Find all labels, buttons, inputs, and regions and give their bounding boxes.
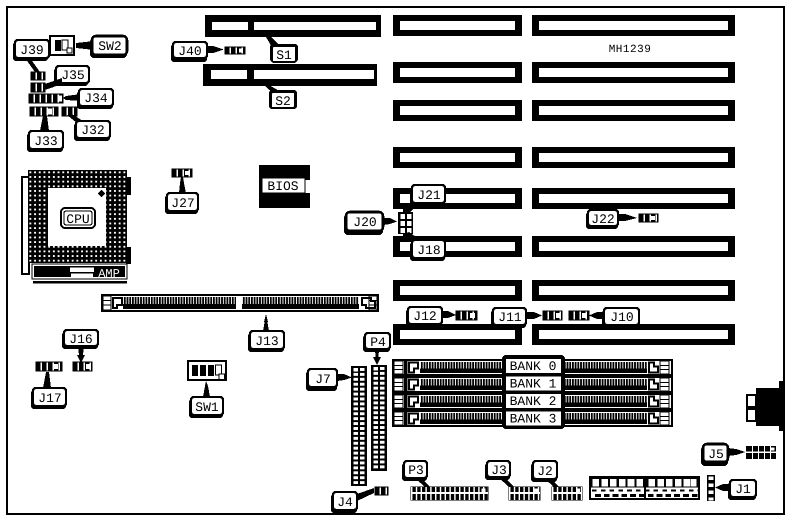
svg-text:S2: S2	[275, 94, 291, 109]
svg-text:BIOS: BIOS	[267, 179, 298, 194]
svg-text:P3: P3	[408, 463, 424, 478]
svg-text:J12: J12	[413, 309, 436, 324]
svg-text:J11: J11	[498, 310, 522, 325]
svg-text:J5: J5	[708, 447, 724, 462]
svg-text:CPU: CPU	[66, 212, 89, 227]
svg-text:S1: S1	[276, 48, 292, 63]
svg-text:SW1: SW1	[195, 400, 219, 415]
svg-text:J35: J35	[61, 68, 84, 83]
svg-text:J10: J10	[610, 310, 633, 325]
svg-text:P4: P4	[370, 335, 386, 350]
svg-text:SW2: SW2	[98, 39, 121, 54]
svg-text:BANK 0: BANK 0	[510, 359, 557, 374]
svg-text:J34: J34	[84, 91, 108, 106]
svg-text:BANK 3: BANK 3	[510, 412, 557, 427]
svg-text:J13: J13	[255, 334, 278, 349]
svg-text:BANK 1: BANK 1	[510, 377, 557, 392]
svg-text:J39: J39	[20, 43, 43, 58]
svg-text:J40: J40	[178, 44, 201, 59]
svg-text:AMP: AMP	[98, 267, 120, 281]
svg-text:J4: J4	[337, 495, 353, 510]
svg-text:J3: J3	[491, 463, 507, 478]
svg-text:J20: J20	[353, 215, 376, 230]
svg-text:J33: J33	[34, 134, 57, 149]
svg-text:J16: J16	[69, 332, 92, 347]
svg-text:BANK 2: BANK 2	[510, 394, 557, 409]
svg-text:J2: J2	[537, 464, 553, 479]
svg-text:J27: J27	[171, 196, 194, 211]
svg-text:MH1239: MH1239	[609, 44, 652, 56]
svg-text:J7: J7	[315, 372, 331, 387]
svg-text:J1: J1	[735, 482, 751, 497]
svg-text:J32: J32	[81, 123, 104, 138]
svg-text:J21: J21	[417, 188, 441, 203]
svg-text:J18: J18	[417, 243, 440, 258]
svg-text:J17: J17	[38, 391, 61, 406]
svg-text:J22: J22	[591, 212, 614, 227]
